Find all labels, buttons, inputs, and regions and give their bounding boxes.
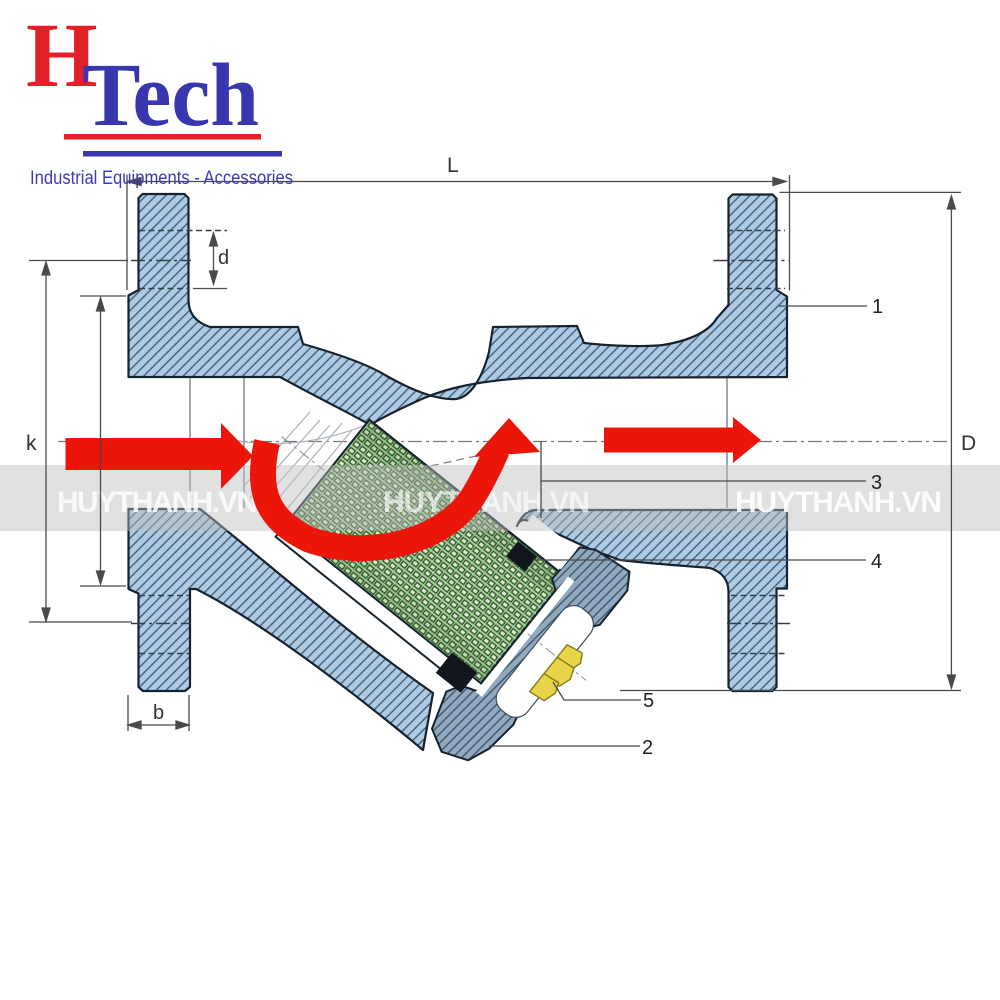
svg-text:4: 4 [871, 551, 882, 573]
svg-text:3: 3 [871, 472, 882, 494]
svg-text:d: d [218, 247, 229, 269]
svg-text:b: b [153, 702, 164, 724]
svg-text:HUYTHANH.VN: HUYTHANH.VN [57, 486, 258, 519]
svg-text:HUYTHANH.VN: HUYTHANH.VN [735, 486, 942, 519]
svg-text:D: D [961, 432, 976, 455]
svg-text:Tech: Tech [82, 46, 259, 145]
svg-text:L: L [447, 154, 459, 177]
svg-text:Industrial Equipments - Access: Industrial Equipments - Accessories [30, 168, 293, 189]
svg-text:k: k [26, 432, 37, 455]
svg-text:1: 1 [872, 296, 883, 318]
svg-text:2: 2 [642, 737, 653, 759]
svg-text:5: 5 [643, 690, 654, 712]
